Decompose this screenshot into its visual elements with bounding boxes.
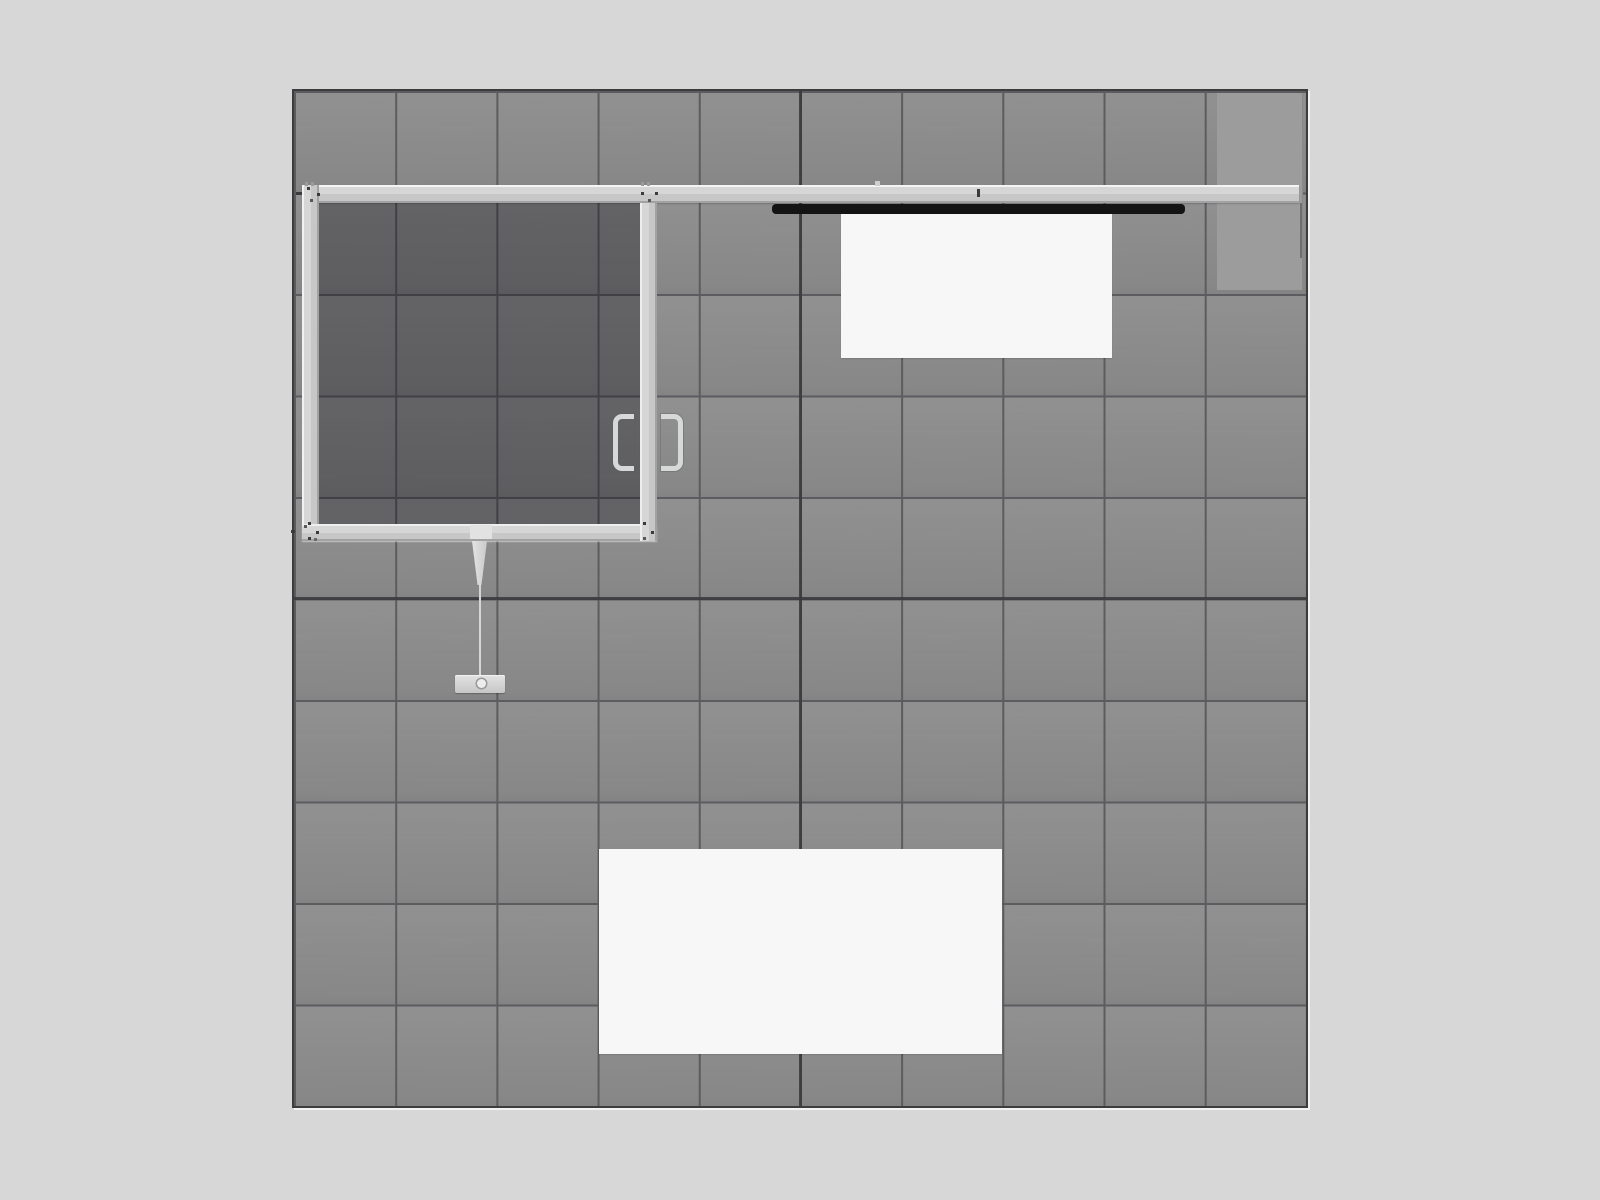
frame-tick-top-left — [296, 192, 302, 195]
storage-door-panel — [640, 203, 657, 541]
frame-notch — [305, 182, 308, 186]
storage-wall-left — [302, 185, 319, 541]
corner-bolts-top-right — [641, 192, 644, 195]
table-panel — [599, 849, 1002, 1054]
corner-bolts-bottom-right — [643, 522, 646, 525]
hanging-fixture-stem — [479, 584, 482, 676]
door-handle-inside — [613, 414, 634, 471]
storage-room-floor — [318, 203, 640, 524]
wall-joint-tick — [977, 189, 980, 197]
wall-panel-notch — [875, 181, 880, 186]
frame-tick-bottom-left — [291, 530, 295, 533]
pendant-mount-tab — [470, 525, 492, 539]
booth-floor-grid — [292, 89, 1308, 1108]
frame-notch — [647, 182, 650, 186]
door-handle-outside — [661, 414, 683, 471]
floorplan-canvas — [0, 0, 1600, 1200]
tv-mount-bar — [772, 204, 1185, 214]
hanging-fixture-cone — [472, 541, 487, 585]
storage-room — [302, 185, 657, 541]
frame-notch — [641, 182, 644, 186]
corner-bolts-bottom-left — [308, 522, 311, 525]
frame-notch — [311, 182, 314, 186]
presentation-screen — [841, 214, 1112, 358]
corner-bolts-top-left — [307, 187, 310, 190]
floor-seam-horizontal — [294, 597, 1306, 600]
hanging-fixture-knob — [477, 679, 486, 688]
wall-end-seam — [1300, 203, 1302, 258]
